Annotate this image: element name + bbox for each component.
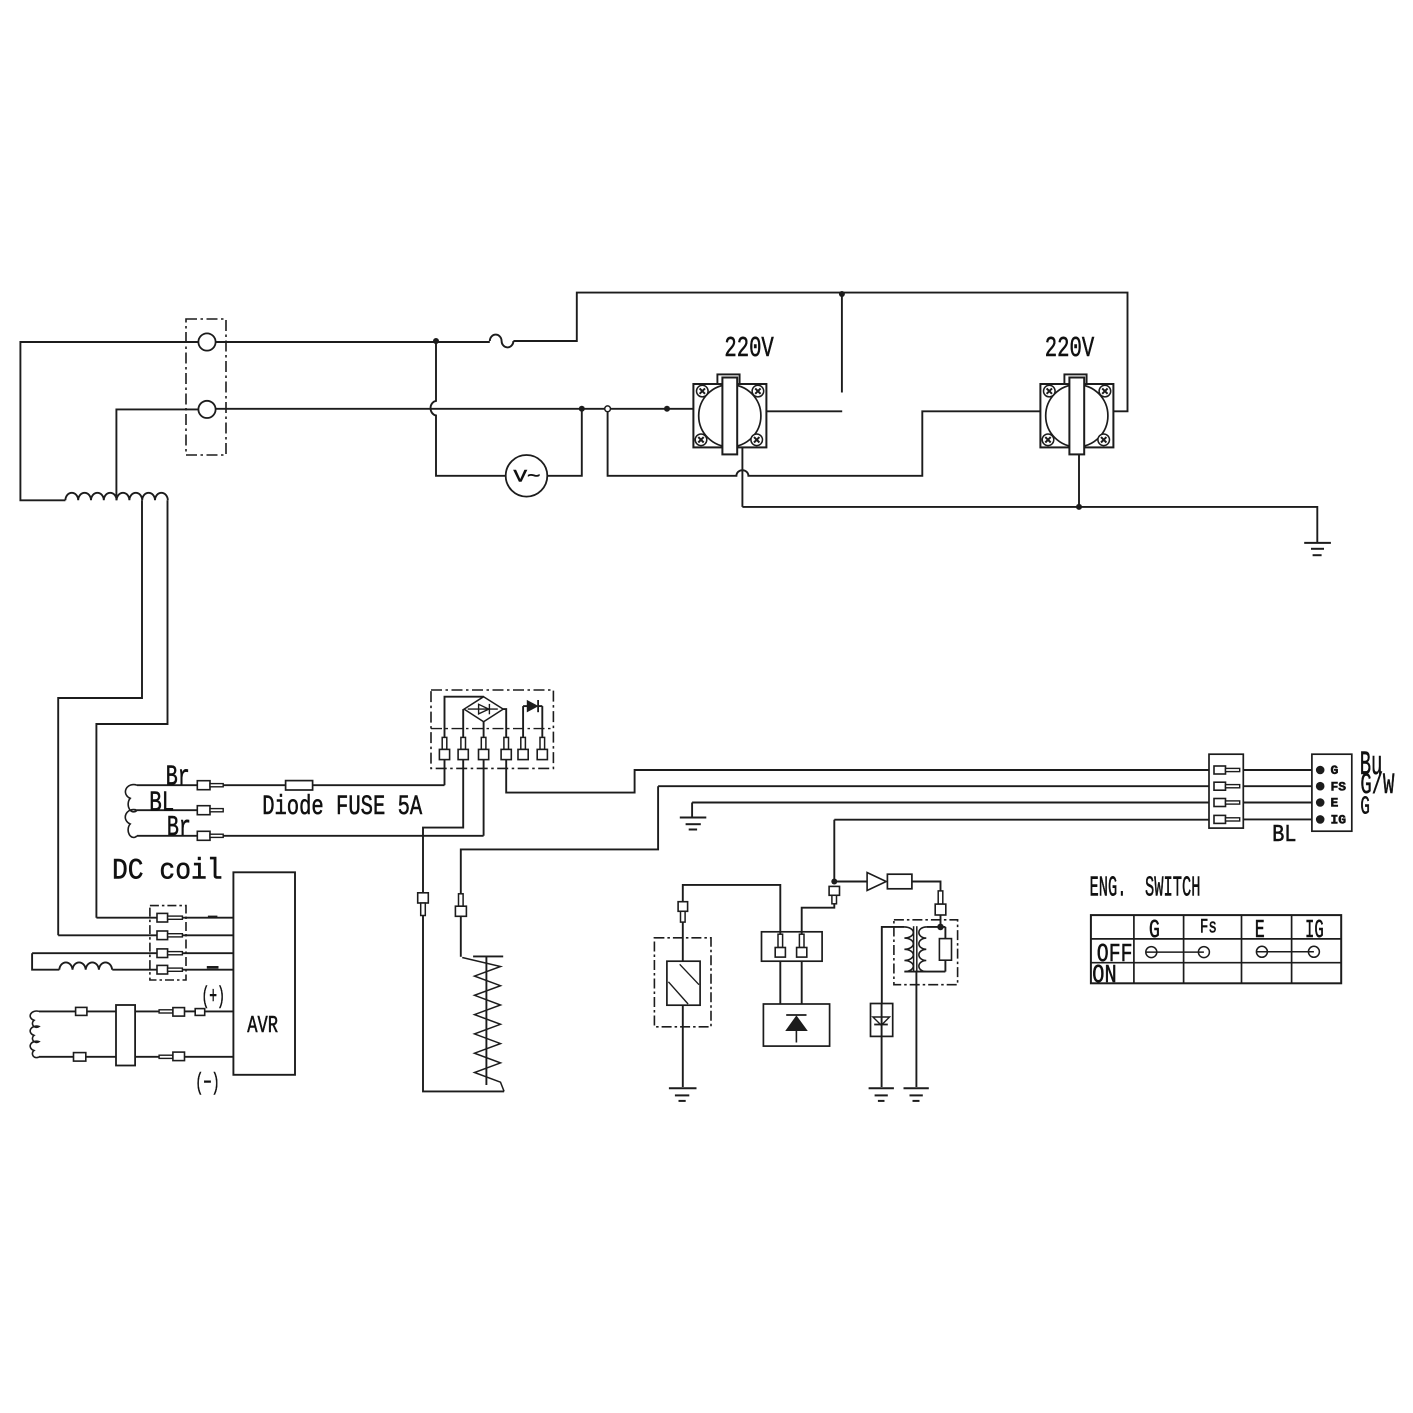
svg-text:E: E — [1255, 915, 1265, 945]
svg-text:BL: BL — [1272, 822, 1296, 849]
svg-text:220V: 220V — [1045, 332, 1095, 365]
svg-text:FS: FS — [1331, 779, 1347, 794]
svg-text:Br: Br — [167, 811, 191, 844]
svg-text:G: G — [1331, 763, 1339, 778]
svg-text:ENG. SWITCH: ENG. SWITCH — [1090, 872, 1201, 905]
svg-text:Fs: Fs — [1200, 916, 1217, 939]
svg-text:Diode FUSE 5A: Diode FUSE 5A — [262, 792, 422, 823]
svg-text:G: G — [1149, 915, 1160, 945]
svg-text:(−): (−) — [195, 1071, 219, 1098]
svg-text:G: G — [1360, 792, 1370, 821]
svg-text:(+): (+) — [202, 984, 225, 1011]
svg-text:E: E — [1331, 796, 1339, 811]
svg-text:220V: 220V — [724, 332, 774, 365]
svg-text:ON: ON — [1092, 960, 1116, 990]
svg-text:IG: IG — [1305, 915, 1324, 945]
svg-text:AVR: AVR — [247, 1013, 278, 1040]
svg-text:V~: V~ — [514, 468, 541, 488]
svg-text:DC coil: DC coil — [112, 855, 223, 889]
svg-text:IG: IG — [1331, 813, 1347, 828]
